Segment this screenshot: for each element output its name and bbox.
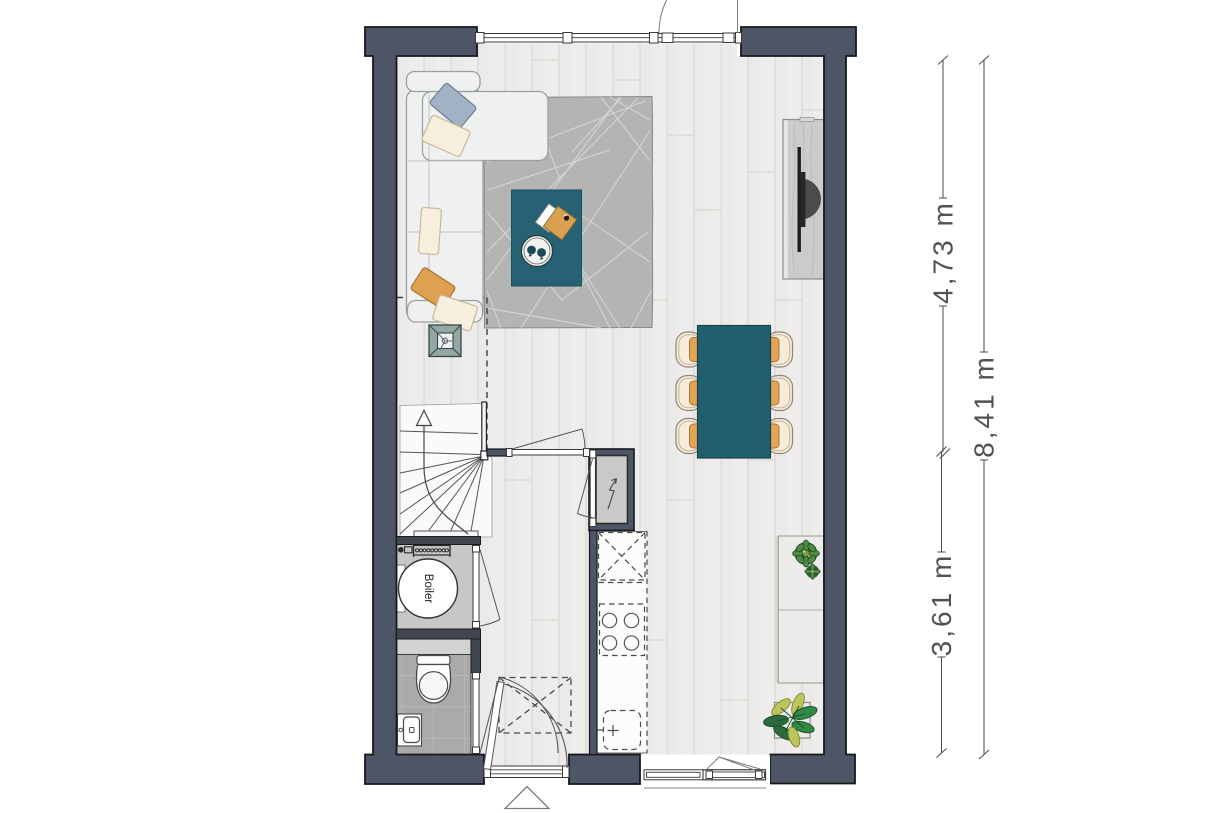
svg-text:8,41 m: 8,41 m bbox=[969, 354, 1000, 458]
svg-text:4,73 m: 4,73 m bbox=[928, 200, 959, 304]
svg-text:3,61 m: 3,61 m bbox=[926, 553, 957, 657]
svg-text:Boiler: Boiler bbox=[422, 574, 434, 604]
